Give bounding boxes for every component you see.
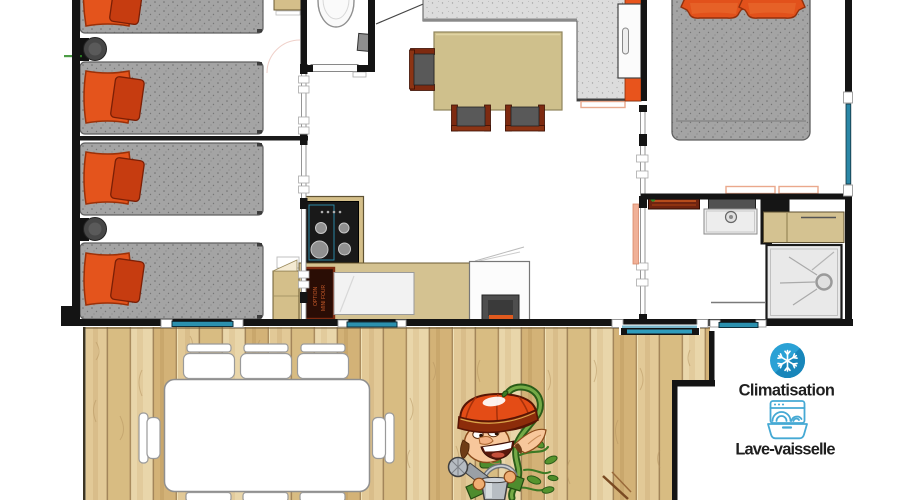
svg-text:Lave-vaisselle: Lave-vaisselle bbox=[735, 441, 835, 459]
svg-text:MINI FOUR: MINI FOUR bbox=[321, 285, 327, 311]
svg-text:Climatisation: Climatisation bbox=[739, 382, 835, 400]
svg-text:OPTION: OPTION bbox=[313, 286, 319, 306]
